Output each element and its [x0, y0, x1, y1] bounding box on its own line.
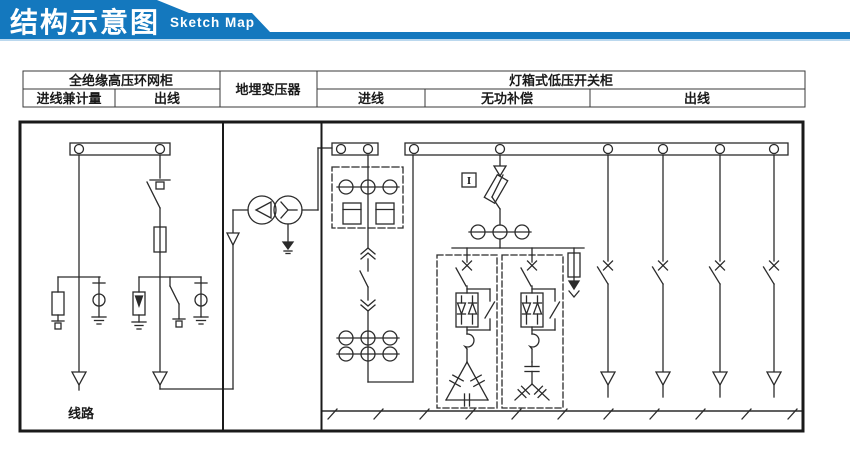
metering-box [332, 155, 403, 248]
hv-outgoing-feeder [132, 155, 233, 389]
transformer-ground [283, 224, 293, 254]
line-label: 线路 [68, 406, 95, 421]
capacitor-bank-star [502, 248, 563, 408]
outgoing-feeder-1 [598, 155, 616, 397]
lv-switchgear-section: I [322, 143, 801, 419]
hv-incoming-feeder [52, 155, 106, 390]
transformer-section [227, 148, 332, 389]
capacitor-bank-delta [437, 248, 497, 408]
outgoing-feeder-4 [764, 155, 782, 397]
legend-table: 全绝缘高压环网柜 地埋变压器 灯箱式低压开关柜 进线兼计量 出线 进线 无功补偿… [23, 71, 805, 107]
flow-arrow [227, 233, 239, 245]
hv-busbar [70, 143, 170, 155]
compensation-incoming-feeder [452, 155, 584, 248]
arrester-fuse [568, 248, 580, 297]
schematic-canvas: 全绝缘高压环网柜 地埋变压器 灯箱式低压开关柜 进线兼计量 出线 进线 无功补偿… [0, 0, 850, 462]
phase-indicator-box: I [462, 173, 476, 187]
ground-bar [322, 409, 801, 419]
col-lv-cabinet: 灯箱式低压开关柜 [509, 73, 613, 88]
col-lv-incoming: 进线 [358, 91, 384, 106]
lv-main-busbar [405, 143, 788, 155]
transformer-symbol [248, 196, 302, 224]
col-hv-cabinet: 全绝缘高压环网柜 [68, 73, 173, 88]
col-transformer: 地埋变压器 [235, 82, 301, 97]
enclosure-borders [20, 122, 803, 431]
hv-ring-main-unit-section: 线路 [52, 143, 233, 421]
outgoing-feeder-2 [653, 155, 671, 397]
col-lv-outgoing: 出线 [684, 91, 710, 106]
lv-entry-busbar [332, 143, 378, 155]
outgoing-feeders [598, 155, 782, 397]
outgoing-feeder-3 [710, 155, 728, 397]
col-hv-outgoing: 出线 [154, 91, 180, 106]
col-hv-incoming: 进线兼计量 [36, 91, 101, 106]
sketch-map-page: 结构示意图 Sketch Map [0, 0, 850, 462]
indicator-letter: I [467, 175, 471, 187]
col-compensation: 无功补偿 [480, 91, 533, 106]
